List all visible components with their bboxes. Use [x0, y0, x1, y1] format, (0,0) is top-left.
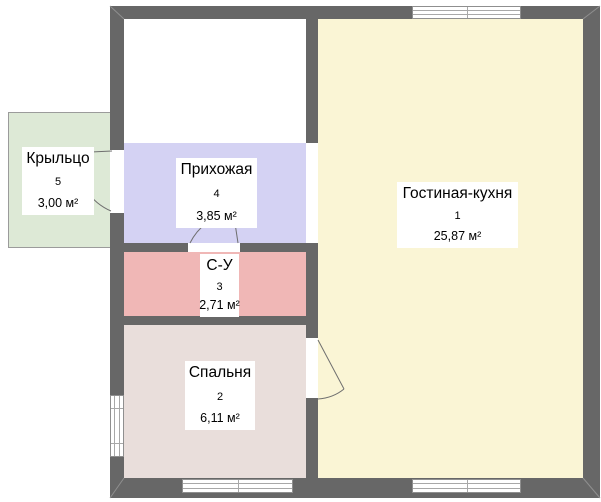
room-area: 2,71 м²: [199, 299, 240, 313]
label-porch: Крыльцо 5 3,00 м²: [22, 147, 94, 215]
room-number: 1: [454, 210, 460, 222]
passage-hallway-living: [306, 143, 318, 243]
floor-plan: Гостиная-кухня 1 25,87 м² Спальня 2 6,11…: [0, 0, 601, 502]
window-frame-line: [119, 396, 120, 456]
window-top: [412, 6, 521, 19]
wall-interior-vertical: [306, 19, 318, 478]
room-name: Гостиная-кухня: [403, 185, 513, 202]
label-hallway: Прихожая 4 3,85 м²: [176, 158, 257, 228]
label-living-kitchen: Гостиная-кухня 1 25,87 м²: [397, 182, 518, 248]
window-mullion: [467, 7, 468, 18]
door-opening-porch: [110, 150, 124, 213]
room-area: 6,11 м²: [200, 412, 240, 426]
window-mullion: [111, 408, 123, 409]
room-area: 25,87 м²: [434, 230, 482, 244]
window-bottom-living: [412, 479, 521, 493]
door-opening-bedroom-living: [306, 338, 318, 398]
room-name: Прихожая: [181, 161, 253, 178]
room-name: Крыльцо: [26, 150, 89, 167]
room-living-fill: [318, 19, 583, 478]
room-area: 3,85 м²: [196, 210, 237, 224]
room-number: 3: [216, 281, 222, 293]
window-left-bedroom: [110, 395, 124, 457]
wall-bathroom-bedroom: [124, 316, 306, 325]
door-opening-bathroom: [188, 243, 240, 252]
window-mullion: [238, 480, 239, 492]
window-bottom-bedroom: [182, 479, 293, 493]
wall-right: [583, 6, 600, 498]
room-area: 3,00 м²: [38, 197, 79, 211]
wall-top: [110, 6, 600, 19]
window-frame-line: [114, 396, 115, 456]
room-number: 4: [213, 188, 219, 200]
room-unlabeled-fill: [124, 19, 306, 143]
room-name: С-У: [206, 257, 232, 274]
room-name: Спальня: [189, 364, 251, 381]
room-number: 2: [217, 391, 223, 403]
label-bedroom: Спальня 2 6,11 м²: [185, 361, 255, 430]
window-mullion: [111, 443, 123, 444]
label-bathroom: С-У 3 2,71 м²: [200, 254, 239, 317]
window-mullion: [467, 480, 468, 492]
room-number: 5: [55, 176, 61, 188]
